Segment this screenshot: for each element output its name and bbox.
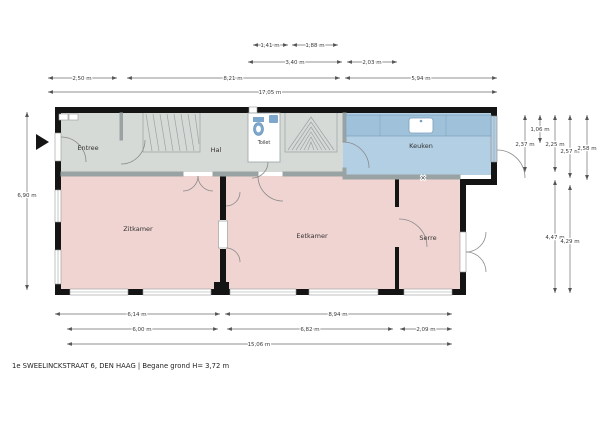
dim-bottom-5: 2,09 m [416,327,435,333]
wall-hal-eetkamer-b [213,172,258,176]
dim-right-3: 2,25 m [545,142,564,148]
keuken-label: Keuken [409,142,433,150]
kitchen-tap-icon [420,120,423,123]
front-door-opening [55,133,61,161]
dim-right-6: 4,29 m [560,239,579,245]
dim-bottom-3: 6,00 m [132,327,151,333]
wall-keuken-serre [343,175,460,179]
wall-hal-eetkamer-c [283,172,343,176]
pier-serre-top [395,179,399,207]
dim-right-7: 2,58 m [577,146,596,152]
dim-bottom-total: 15,06 m [248,342,271,348]
wall-top [55,107,497,113]
eetkamer-serre-opening [395,207,399,247]
toilet-label: Toilet [257,140,271,146]
dim-right-2: 1,06 m [530,127,549,133]
wall-hal-zitkamer-a [61,172,183,176]
cross-marker: × [420,174,426,182]
footer-caption: 1e SWEELINCKSTRAAT 6, DEN HAAG | Begane … [12,362,229,370]
washbasin-icon [269,115,278,123]
meter-box-2 [69,114,78,120]
dim-top-7: 5,94 m [411,76,430,82]
wall-entree-hal [120,113,123,140]
serre-label: Serre [419,234,436,242]
dim-top-6: 8,21 m [223,76,242,82]
garden-door-arc-top [466,232,486,252]
dim-top-4: 2,03 m [362,60,381,66]
top-wall-vent [249,107,257,113]
entrance-arrow-icon [36,134,49,150]
ensuite-cabinet [219,221,228,248]
dim-right-1: 2,37 m [515,142,534,148]
dim-top-1: 1,41 m [260,43,279,49]
entree-label: Entree [77,144,98,152]
hal-label: Hal [211,146,222,154]
garden-door-arc-bottom [466,252,486,272]
dim-bottom-2: 8,94 m [328,312,347,318]
dim-left-1: 6,90 m [17,193,36,199]
wall-hal-keuken-bottom [343,168,346,175]
toilet-bowl-inner [256,126,261,133]
pier-zitkamer-bottom [220,249,226,289]
pier-serre-bottom [395,247,399,289]
floorplan-canvas: × Entree Hal Toilet Keuken Zitkamer Eetk… [0,0,600,424]
dimensions-bottom: 6,14 m 8,94 m 6,00 m 6,82 m 2,09 m 15,06… [55,312,452,348]
floorplan-page: × Entree Hal Toilet Keuken Zitkamer Eetk… [0,0,600,424]
dimensions-right: 2,37 m 1,06 m 2,25 m 4,47 m 2,57 m 4,29 … [515,115,596,293]
dim-top-3: 3,40 m [285,60,304,66]
dimensions-top: 1,41 m 1,88 m 3,40 m 2,03 m 2,50 m 8,21 … [48,43,497,96]
dim-top-total: 17,05 m [259,90,282,96]
zitkamer-label: Zitkamer [123,225,153,233]
serre-door-opening [460,232,466,272]
eetkamer-label: Eetkamer [296,232,328,240]
toilet-tank-icon [253,117,264,122]
dim-top-2: 1,88 m [305,43,324,49]
pier-zitkamer-top [220,176,226,220]
keuken-side-door-arc [497,150,525,178]
dim-bottom-4: 6,82 m [300,327,319,333]
wall-hal-keuken-top [343,113,346,142]
dimensions-left: 6,90 m [17,112,36,290]
dim-bottom-1: 6,14 m [127,312,146,318]
dim-top-5: 2,50 m [72,76,91,82]
meter-box-1 [59,114,68,120]
